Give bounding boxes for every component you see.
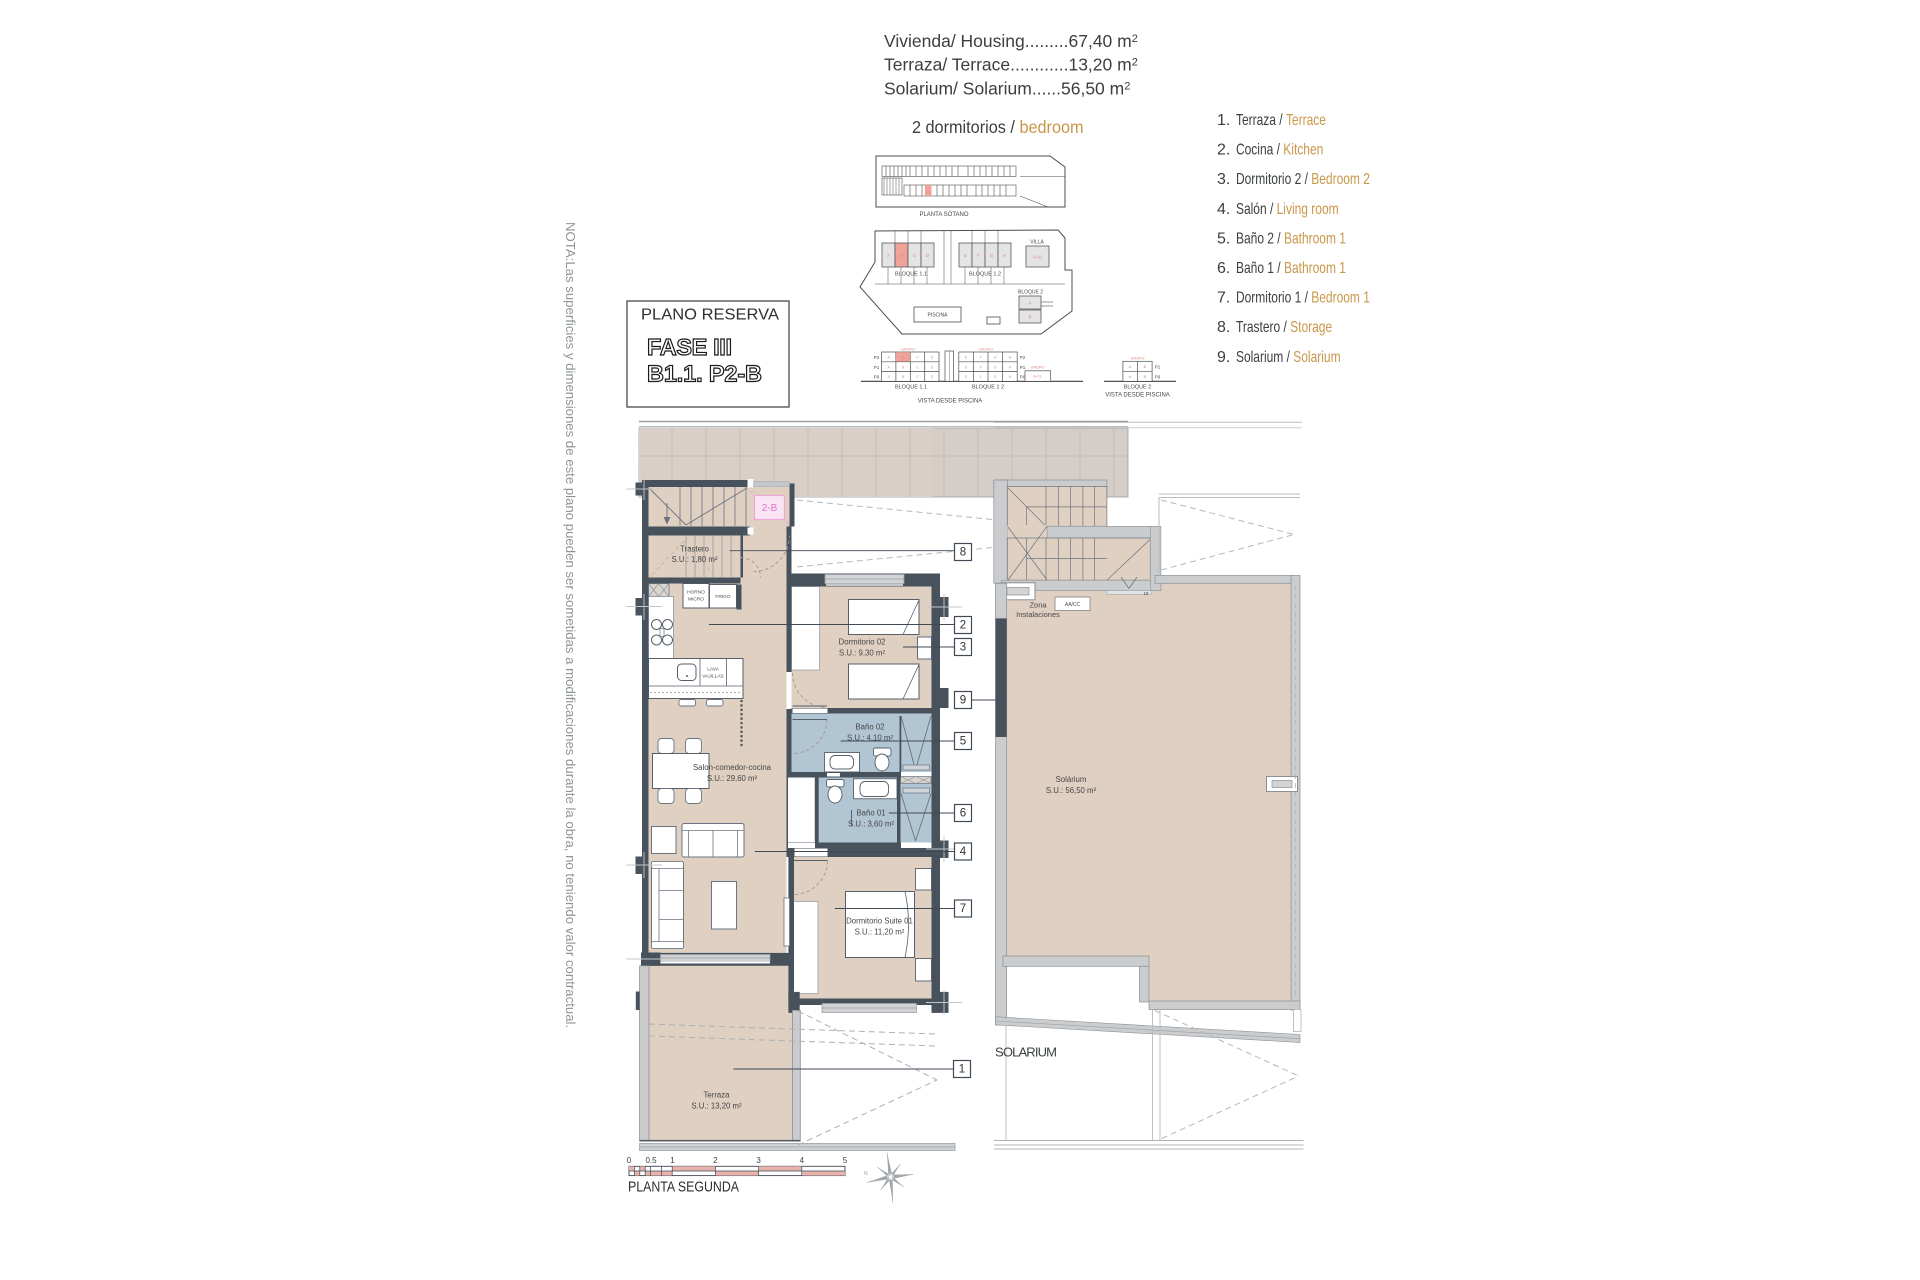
svg-text:3: 3 (960, 642, 966, 654)
svg-text:Cocina / Kitchen: Cocina / Kitchen (1236, 140, 1323, 158)
svg-text:B: B (900, 253, 903, 258)
svg-text:MICRO: MICRO (688, 597, 704, 603)
svg-text:4.: 4. (1217, 201, 1230, 218)
svg-text:H: H (1009, 365, 1012, 369)
svg-text:G: G (994, 365, 997, 369)
svg-text:BLOQUE 1.1: BLOQUE 1.1 (895, 385, 927, 391)
svg-text:3: 3 (756, 1156, 761, 1165)
svg-text:7.: 7. (1217, 290, 1230, 307)
svg-text:H: H (1009, 356, 1012, 360)
svg-text:Dormitorio 1 / Bedroom 1: Dormitorio 1 / Bedroom 1 (1236, 288, 1370, 306)
svg-text:S.U.: 56,50 m²: S.U.: 56,50 m² (1046, 786, 1097, 795)
svg-text:Baño 01: Baño 01 (856, 809, 885, 818)
svg-text:1: 1 (670, 1156, 675, 1165)
svg-text:D: D (931, 375, 934, 379)
svg-text:BLOQUE 2: BLOQUE 2 (1124, 385, 1152, 391)
svg-text:A: A (887, 253, 890, 258)
svg-text:GRUPO: GRUPO (979, 348, 993, 352)
svg-text:Dormitorio 2 / Bedroom 2: Dormitorio 2 / Bedroom 2 (1236, 169, 1370, 187)
svg-text:2 dormitorios / bedroom: 2 dormitorios / bedroom (912, 117, 1084, 137)
svg-text:F: F (977, 253, 980, 258)
svg-text:8: 8 (960, 547, 966, 559)
svg-text:P1: P1 (874, 365, 880, 370)
svg-text:S.U.: 1,80 m²: S.U.: 1,80 m² (672, 555, 718, 564)
svg-text:A-01: A-01 (1033, 255, 1043, 260)
svg-text:B: B (1144, 374, 1147, 379)
svg-text:3.: 3. (1217, 171, 1230, 188)
svg-text:Terraza / Terrace: Terraza / Terrace (1236, 110, 1326, 128)
svg-text:GRUPO: GRUPO (1131, 357, 1145, 361)
svg-text:Dormitorio Suite 01: Dormitorio Suite 01 (846, 917, 913, 926)
svg-text:B: B (1144, 364, 1147, 369)
svg-text:VISTA DESDE PISCINA: VISTA DESDE PISCINA (918, 399, 983, 405)
svg-text:Trastero / Storage: Trastero / Storage (1236, 317, 1332, 335)
svg-text:VAJILLAS: VAJILLAS (702, 674, 724, 680)
svg-text:2: 2 (713, 1156, 718, 1165)
svg-text:PLANO RESERVA: PLANO RESERVA (641, 307, 779, 324)
svg-text:PLANTA SÓTANO: PLANTA SÓTANO (919, 211, 968, 218)
svg-text:D: D (931, 356, 934, 360)
svg-text:Terraza/ Terrace............13: Terraza/ Terrace............13,20 m2 (884, 55, 1138, 75)
svg-text:A: A (1129, 374, 1132, 379)
svg-text:S.U.: 9,30 m²: S.U.: 9,30 m² (839, 649, 885, 658)
svg-text:G: G (994, 356, 997, 360)
svg-text:Dormitorio 02: Dormitorio 02 (839, 638, 886, 647)
svg-text:P1: P1 (1155, 365, 1161, 370)
svg-text:Baño 2 / Bathroom 1: Baño 2 / Bathroom 1 (1236, 229, 1346, 247)
svg-text:S.U.: 3,60 m²: S.U.: 3,60 m² (848, 820, 894, 829)
svg-text:BLOQUE 1.1: BLOQUE 1.1 (895, 272, 927, 278)
svg-text:PLANTA SEGUNDA: PLANTA SEGUNDA (628, 1180, 739, 1196)
svg-text:0.5: 0.5 (645, 1156, 657, 1165)
svg-text:NOTA:Las superficies y dimensi: NOTA:Las superficies y dimensiones de es… (563, 222, 578, 1028)
svg-text:S.U.: 11,20 m²: S.U.: 11,20 m² (855, 928, 905, 937)
svg-text:S.U.: 29,60 m²: S.U.: 29,60 m² (707, 774, 758, 783)
svg-text:Trastero: Trastero (680, 545, 709, 554)
svg-text:2: 2 (960, 620, 966, 632)
svg-text:E: E (964, 253, 967, 258)
svg-text:GRUPO: GRUPO (901, 348, 915, 352)
svg-text:Instalaciones: Instalaciones (1016, 610, 1060, 619)
svg-text:A: A (1129, 364, 1132, 369)
svg-text:2-B: 2-B (762, 503, 778, 514)
svg-text:D: D (931, 365, 934, 369)
svg-text:H: H (1003, 253, 1006, 258)
svg-text:Solarium / Solarium: Solarium / Solarium (1236, 347, 1341, 365)
svg-text:S.U.: 13,20 m²: S.U.: 13,20 m² (691, 1102, 742, 1111)
svg-text:AA/CC: AA/CC (1065, 602, 1081, 608)
svg-text:VISTA DESDE PISCINA: VISTA DESDE PISCINA (1105, 393, 1170, 399)
svg-text:FASE III: FASE III (647, 334, 732, 360)
svg-text:G: G (994, 375, 997, 379)
svg-text:G: G (990, 253, 994, 258)
svg-text:A: A (1028, 301, 1031, 306)
svg-text:FRIGO: FRIGO (715, 594, 730, 600)
svg-text:6: 6 (960, 808, 966, 820)
svg-text:P0: P0 (1155, 375, 1161, 380)
svg-text:9: 9 (960, 695, 966, 707)
svg-text:C: C (916, 375, 919, 379)
svg-text:C: C (916, 365, 919, 369)
svg-text:6.: 6. (1217, 260, 1230, 277)
svg-text:Salón / Living room: Salón / Living room (1236, 199, 1339, 217)
svg-text:LAVA: LAVA (707, 667, 719, 673)
svg-text:BLOQUE 1 2: BLOQUE 1 2 (972, 385, 1004, 391)
svg-text:1.: 1. (1217, 112, 1230, 129)
svg-text:BLOQUE 2: BLOQUE 2 (1018, 290, 1043, 296)
svg-text:N: N (864, 1171, 868, 1177)
svg-text:PISCINA: PISCINA (927, 313, 948, 319)
svg-text:5: 5 (960, 736, 966, 748)
svg-text:S.U.: 4,10 m²: S.U.: 4,10 m² (847, 734, 893, 743)
svg-text:B: B (1028, 315, 1031, 320)
svg-text:P1: P1 (1020, 365, 1026, 370)
svg-text:5: 5 (843, 1156, 848, 1165)
svg-text:Baño 02: Baño 02 (855, 723, 884, 732)
svg-text:P2: P2 (1020, 355, 1026, 360)
svg-text:GRUPO: GRUPO (1031, 366, 1045, 370)
svg-text:1: 1 (959, 1064, 965, 1076)
svg-text:Baño 1 / Bathroom 1: Baño 1 / Bathroom 1 (1236, 258, 1346, 276)
svg-text:Solarium/ Solarium......56,50: Solarium/ Solarium......56,50 m2 (884, 79, 1130, 99)
svg-text:8.: 8. (1217, 319, 1230, 336)
svg-text:H: H (1009, 375, 1012, 379)
svg-text:9.: 9. (1217, 349, 1230, 366)
svg-text:7: 7 (960, 903, 966, 915)
svg-text:4: 4 (960, 846, 967, 858)
svg-text:P2: P2 (874, 355, 880, 360)
svg-text:P0: P0 (874, 375, 880, 380)
svg-text:19: 19 (1143, 591, 1149, 596)
svg-text:SOLARIUM: SOLARIUM (995, 1045, 1057, 1060)
svg-text:Terraza: Terraza (704, 1091, 731, 1100)
svg-text:4: 4 (800, 1156, 805, 1165)
svg-text:HORNO: HORNO (687, 590, 705, 596)
svg-text:5.: 5. (1217, 230, 1230, 247)
svg-text:A-01: A-01 (1033, 374, 1042, 379)
svg-text:Zona: Zona (1029, 601, 1047, 610)
svg-text:VILLA: VILLA (1030, 240, 1044, 246)
svg-text:2.: 2. (1217, 142, 1230, 159)
svg-text:0: 0 (627, 1156, 632, 1165)
svg-text:Salon-comedor-cocina: Salon-comedor-cocina (693, 763, 772, 772)
svg-text:B1.1. P2-B: B1.1. P2-B (647, 361, 762, 387)
svg-text:Vivienda/ Housing.........67,4: Vivienda/ Housing.........67,40 m2 (884, 31, 1138, 51)
svg-text:Solárium: Solárium (1056, 775, 1087, 784)
svg-text:C: C (916, 356, 919, 360)
svg-text:BLOQUE 1.2: BLOQUE 1.2 (969, 272, 1001, 278)
